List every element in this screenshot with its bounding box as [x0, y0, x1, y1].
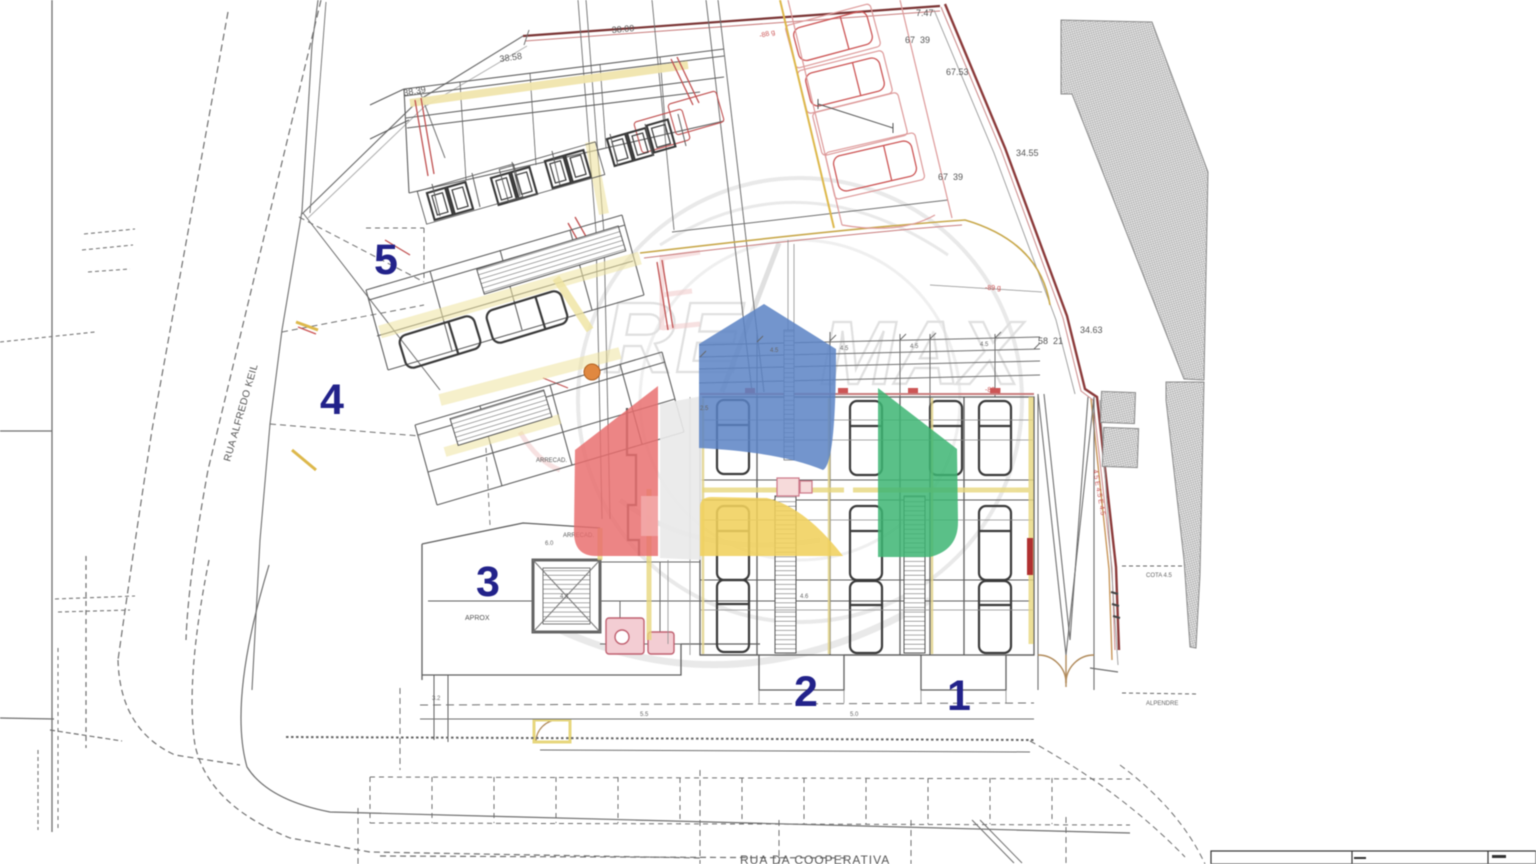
svg-text:3: 3: [476, 558, 500, 606]
svg-text:4.6: 4.6: [800, 594, 809, 600]
svg-text:5.0: 5.0: [850, 712, 859, 718]
svg-text:2.5: 2.5: [700, 406, 709, 412]
svg-text:4.5: 4.5: [980, 342, 989, 348]
svg-text:34.55: 34.55: [1016, 148, 1039, 158]
svg-text:3.2: 3.2: [432, 696, 441, 702]
svg-text:38.00: 38.00: [611, 23, 634, 35]
svg-text:4.5: 4.5: [770, 348, 779, 354]
svg-text:2: 2: [794, 668, 818, 716]
svg-text:4.5: 4.5: [910, 344, 919, 350]
svg-text:7.47: 7.47: [916, 8, 934, 18]
svg-text:4.5: 4.5: [840, 346, 849, 352]
svg-text:1: 1: [947, 672, 971, 720]
svg-text:6.0: 6.0: [545, 541, 554, 547]
svg-text:5.5: 5.5: [640, 712, 649, 718]
svg-text:67 39: 67 39: [905, 35, 930, 45]
svg-text:ALPENDRE: ALPENDRE: [1146, 701, 1178, 707]
svg-text:-89 g: -89 g: [985, 387, 1001, 394]
svg-text:34.63: 34.63: [1080, 325, 1103, 335]
svg-text:-89 g: -89 g: [985, 285, 1001, 292]
svg-text:APROX: APROX: [465, 615, 490, 622]
svg-text:4.4: 4.4: [560, 594, 569, 600]
svg-text:ARRECAD.: ARRECAD.: [536, 458, 567, 464]
svg-text:5: 5: [374, 236, 398, 284]
svg-text:67 39: 67 39: [938, 172, 963, 182]
svg-text:4: 4: [320, 376, 344, 424]
svg-text:COTA 4.5: COTA 4.5: [1146, 573, 1173, 579]
svg-text:58 21: 58 21: [1038, 336, 1063, 346]
svg-text:RUA DA COOPERATIVA: RUA DA COOPERATIVA: [740, 853, 890, 864]
svg-text:67.53: 67.53: [946, 67, 969, 77]
